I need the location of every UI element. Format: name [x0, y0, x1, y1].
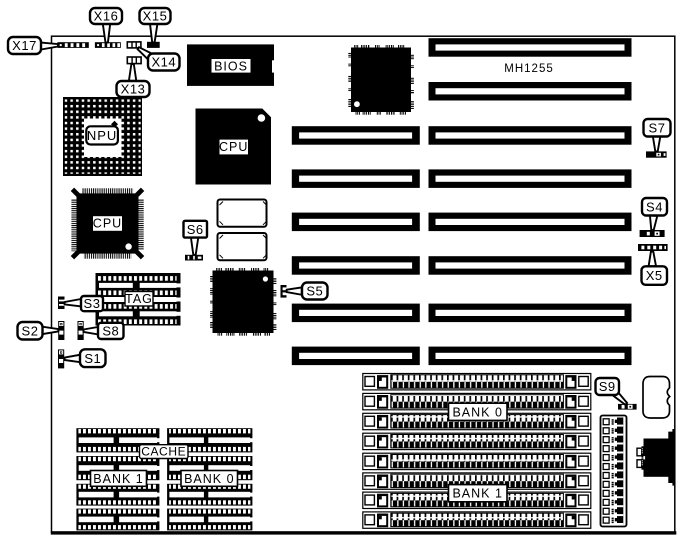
svg-text:S1: S1 [84, 351, 101, 366]
svg-text:S3: S3 [84, 296, 101, 311]
svg-text:X5: X5 [646, 268, 663, 283]
svg-text:S4: S4 [646, 199, 663, 214]
svg-text:X16: X16 [94, 9, 119, 24]
svg-text:BANK 1: BANK 1 [452, 487, 502, 501]
svg-text:BIOS: BIOS [214, 59, 248, 73]
svg-text:BANK 0: BANK 0 [184, 472, 234, 486]
svg-text:S8: S8 [102, 324, 119, 339]
svg-text:X17: X17 [12, 38, 37, 53]
svg-text:CPU: CPU [219, 140, 248, 154]
svg-text:MH1255: MH1255 [504, 63, 553, 75]
svg-text:X14: X14 [151, 55, 176, 70]
svg-text:TAG: TAG [125, 292, 153, 306]
svg-text:BANK 1: BANK 1 [93, 472, 143, 486]
svg-text:S5: S5 [306, 284, 323, 299]
svg-text:X15: X15 [143, 9, 168, 24]
svg-text:CACHE: CACHE [141, 445, 186, 459]
svg-text:X13: X13 [121, 82, 146, 97]
svg-text:S9: S9 [599, 379, 616, 394]
svg-text:CPU: CPU [93, 217, 122, 231]
svg-text:S6: S6 [187, 222, 204, 237]
svg-text:BANK 0: BANK 0 [452, 405, 502, 419]
svg-text:S7: S7 [649, 120, 666, 135]
svg-text:NPU: NPU [87, 128, 117, 143]
svg-text:S2: S2 [22, 323, 39, 338]
